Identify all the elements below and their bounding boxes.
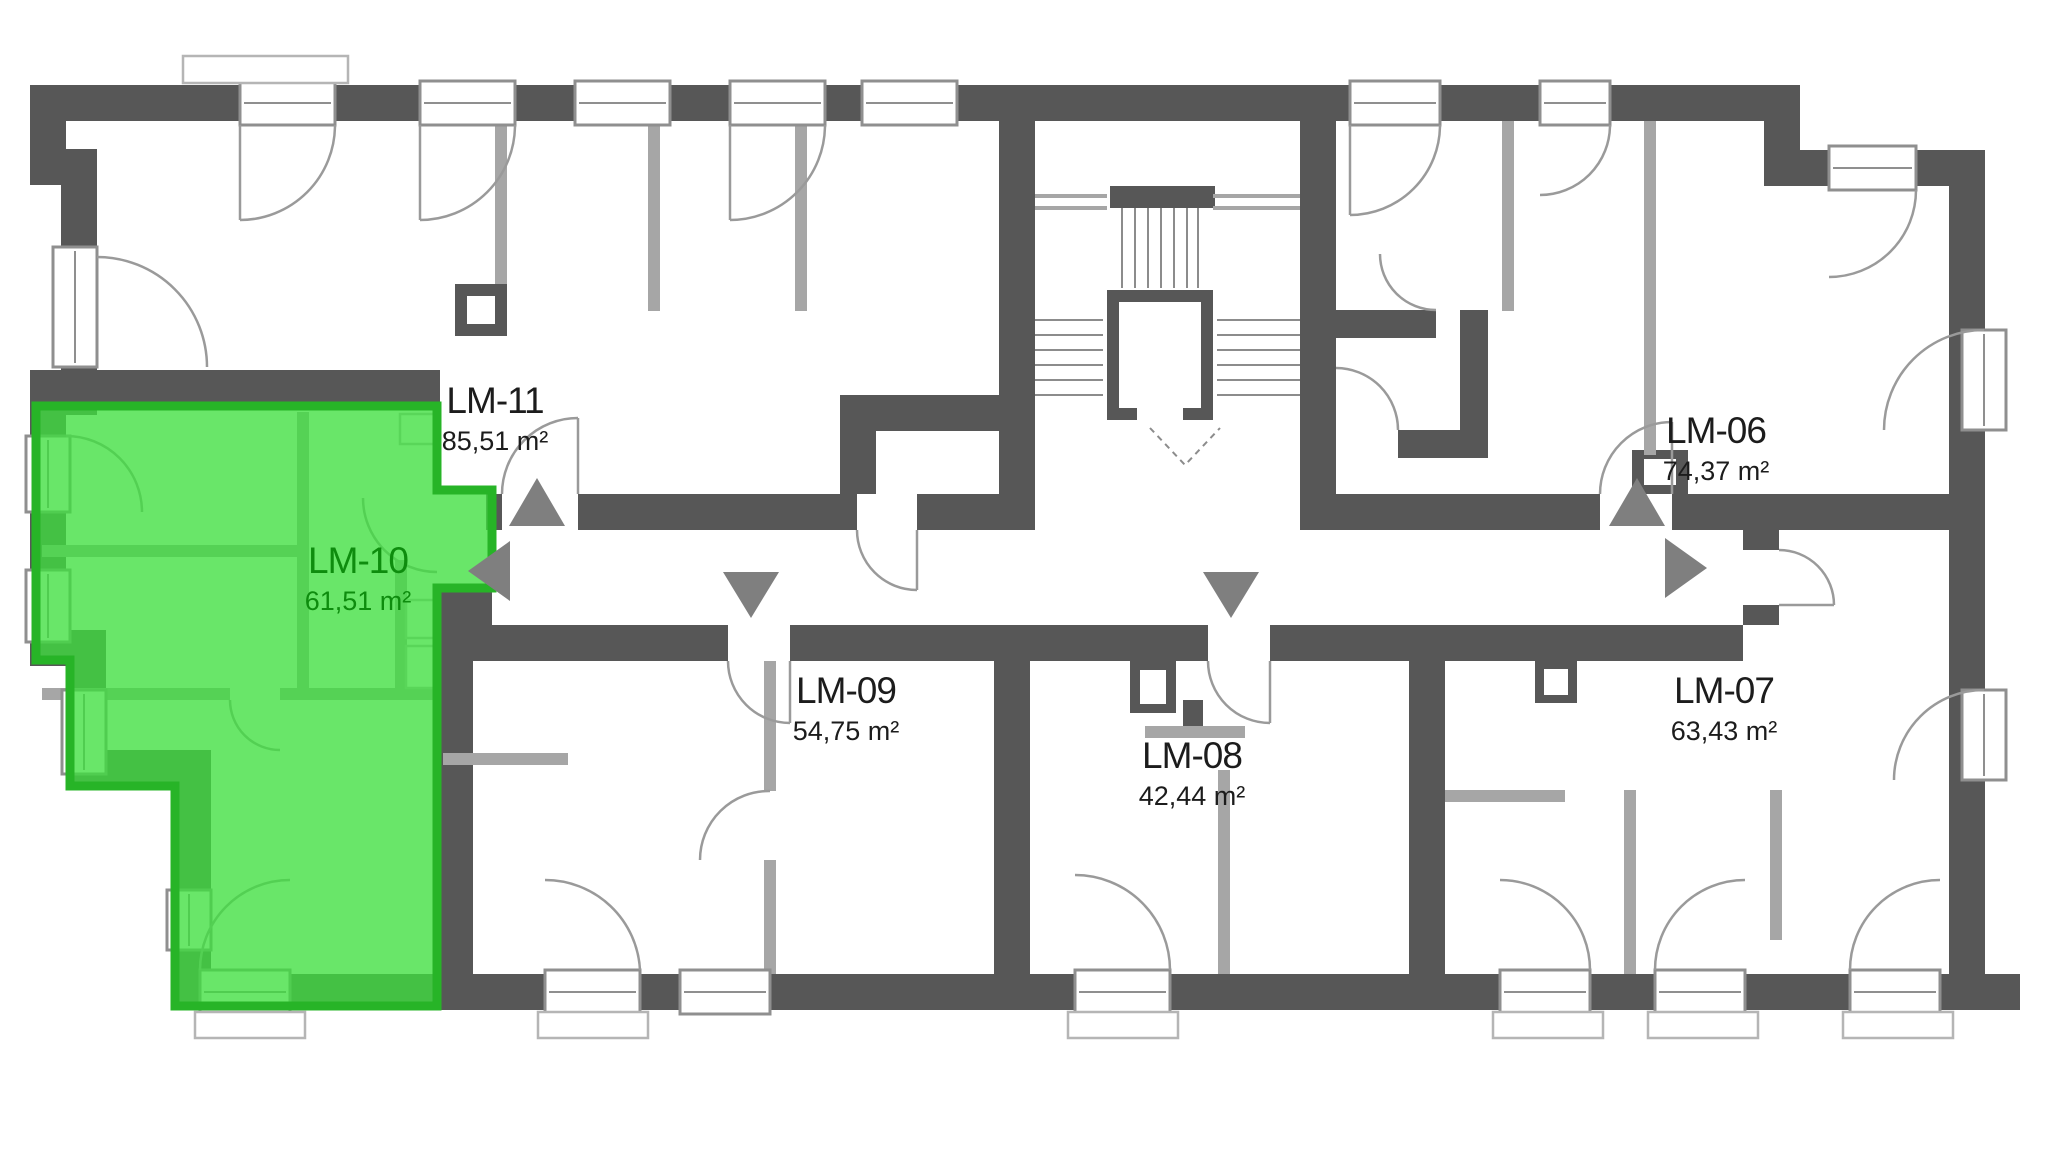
stair-direction-dashed	[1150, 428, 1220, 465]
apartment-lm-06-region[interactable]	[1336, 121, 1948, 494]
entry-stoop	[1068, 1012, 1178, 1038]
apartment-lm-06[interactable]: LM-06 74,37 m²	[1336, 121, 1948, 494]
apartment-label-lm-10: LM-10	[308, 540, 408, 581]
apartment-area-lm-06: 74,37 m²	[1663, 456, 1770, 486]
apartment-label-lm-09: LM-09	[796, 670, 896, 711]
floor-plan-page: LM-10 61,51 m² LM-11 85,51 m² LM-06 74,3…	[0, 0, 2048, 1151]
stair-upper-flight	[1122, 208, 1198, 288]
entrance-arrow-down-lm09-icon	[723, 572, 779, 618]
entrance-arrow-down-lm08-icon	[1203, 572, 1259, 618]
stair-left-flight	[1035, 320, 1103, 395]
entry-stoop	[538, 1012, 648, 1038]
apartment-label-lm-11: LM-11	[446, 380, 543, 421]
balcony-rail	[183, 56, 348, 83]
entry-stoop	[1648, 1012, 1758, 1038]
entrance-arrow-right-lm07-icon	[1665, 538, 1707, 598]
apartment-area-lm-11: 85,51 m²	[442, 426, 549, 456]
stair-right-flight	[1217, 320, 1300, 395]
apartment-lm-07[interactable]: LM-07 63,43 m²	[1445, 530, 2020, 974]
apartment-lm-08-region[interactable]	[1030, 661, 1409, 974]
entry-stoop	[195, 1012, 305, 1038]
apartment-label-lm-07: LM-07	[1674, 670, 1774, 711]
apartment-label-lm-06: LM-06	[1666, 410, 1766, 451]
apartment-area-lm-10: 61,51 m²	[305, 586, 412, 616]
apartment-area-lm-07: 63,43 m²	[1671, 716, 1778, 746]
apartment-lm-10[interactable]: LM-10 61,51 m²	[36, 406, 492, 1006]
entry-stoop	[1843, 1012, 1953, 1038]
floor-plan-svg: LM-10 61,51 m² LM-11 85,51 m² LM-06 74,3…	[0, 0, 2048, 1151]
door-arc	[857, 530, 917, 590]
apartment-label-lm-08: LM-08	[1142, 735, 1242, 776]
apartment-lm-09-region[interactable]	[473, 661, 994, 974]
apartment-lm-11[interactable]: LM-11 85,51 m²	[66, 121, 840, 494]
entry-stoop	[1493, 1012, 1603, 1038]
apartment-area-lm-09: 54,75 m²	[793, 716, 900, 746]
staircase	[1035, 208, 1300, 465]
apartment-lm-07-entry-region[interactable]	[1779, 530, 1949, 625]
apartment-area-lm-08: 42,44 m²	[1139, 781, 1246, 811]
apartment-lm-09[interactable]: LM-09 54,75 m²	[473, 661, 994, 974]
apartment-lm-08[interactable]: LM-08 42,44 m²	[1030, 661, 1409, 974]
apartment-lm-10-highlight[interactable]	[36, 406, 492, 1006]
